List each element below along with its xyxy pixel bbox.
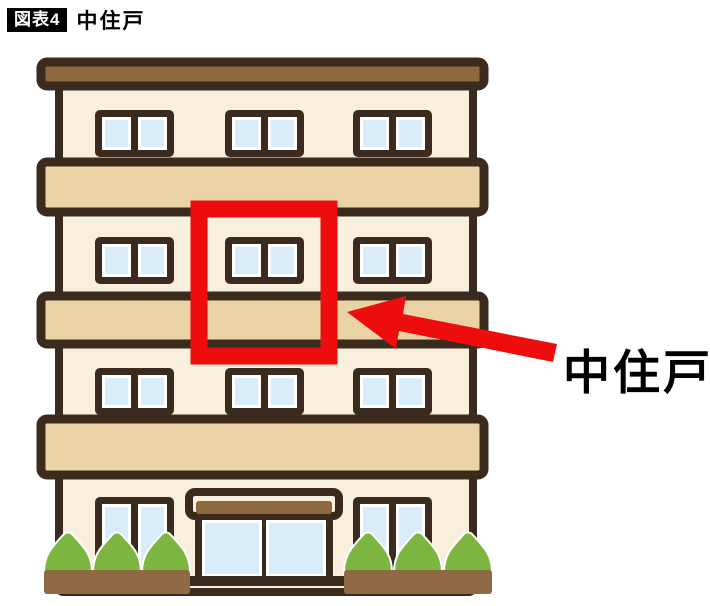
window-icon [225, 110, 304, 157]
window-row-floor-1 [95, 110, 432, 157]
planter-left [44, 570, 190, 594]
window-icon [225, 237, 304, 284]
bushes-right [344, 533, 492, 573]
planter-right [344, 570, 492, 594]
bushes-left [44, 533, 190, 573]
window-icon [95, 237, 174, 284]
window-icon [353, 237, 432, 284]
entrance-canopy-board [196, 501, 332, 514]
window-icon [95, 368, 174, 415]
door-glass [269, 523, 323, 574]
window-icon [353, 110, 432, 157]
window-row-floor-3 [95, 368, 432, 415]
door-glass [205, 523, 259, 574]
window-icon [95, 110, 174, 157]
window-icon [353, 368, 432, 415]
window-row-floor-2 [95, 237, 432, 284]
entrance-threshold [185, 576, 347, 586]
entrance [185, 492, 347, 586]
roof [41, 62, 484, 86]
balcony-band-3 [41, 419, 484, 475]
window-icon [225, 368, 304, 415]
building-illustration: 中住戸 [0, 0, 710, 606]
figure: 図表4 中住戸 [0, 0, 710, 606]
annotation-label: 中住戸 [563, 346, 710, 399]
